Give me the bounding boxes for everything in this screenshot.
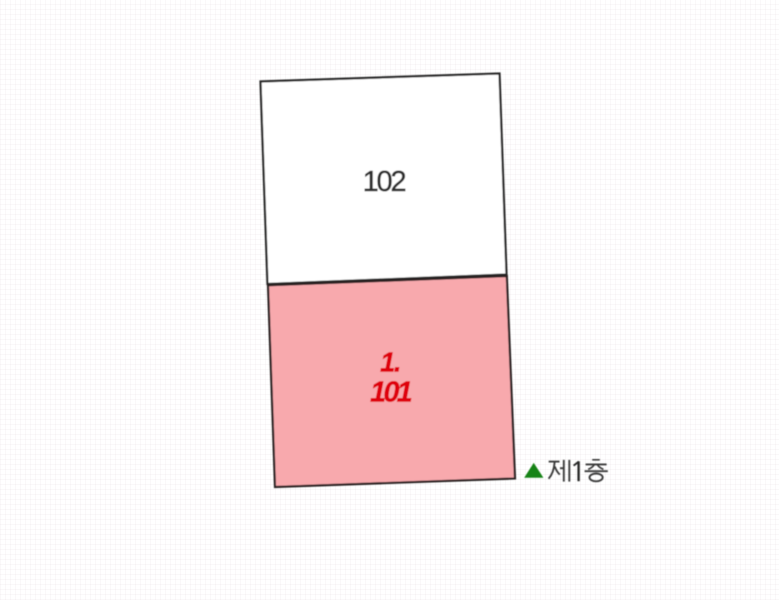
svg-text:102: 102 (363, 166, 406, 198)
svg-text:1.: 1. (380, 347, 400, 378)
svg-text:101: 101 (370, 377, 412, 409)
